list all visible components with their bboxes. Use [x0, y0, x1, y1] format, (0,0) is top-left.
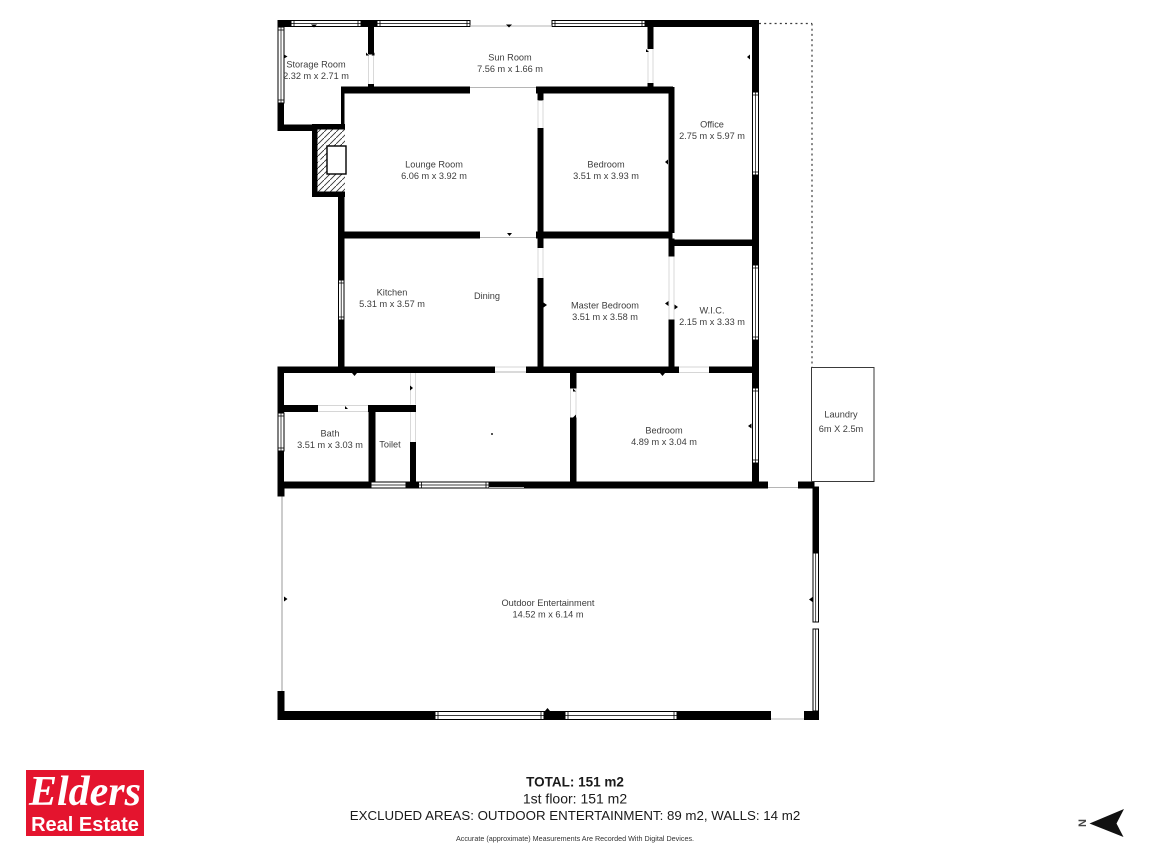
svg-text:W.I.C.: W.I.C.	[699, 306, 724, 316]
svg-text:Office: Office	[700, 120, 724, 130]
svg-text:Real Estate: Real Estate	[31, 814, 139, 836]
svg-text:N: N	[1077, 819, 1089, 827]
svg-text:Bedroom: Bedroom	[587, 160, 625, 170]
svg-text:Laundry: Laundry	[824, 410, 858, 420]
svg-text:5.31 m x 3.57 m: 5.31 m x 3.57 m	[359, 299, 425, 309]
svg-text:7.56 m x 1.66 m: 7.56 m x 1.66 m	[477, 64, 543, 74]
svg-text:Bath: Bath	[321, 429, 340, 439]
svg-text:Lounge Room: Lounge Room	[405, 160, 463, 170]
svg-text:Dining: Dining	[474, 291, 500, 301]
svg-text:3.51 m x 3.93 m: 3.51 m x 3.93 m	[573, 171, 639, 181]
svg-text:Sun Room: Sun Room	[488, 53, 532, 63]
svg-text:Toilet: Toilet	[379, 440, 401, 450]
svg-text:Bedroom: Bedroom	[645, 426, 683, 436]
svg-text:3.51 m x 3.58 m: 3.51 m x 3.58 m	[572, 312, 638, 322]
svg-text:TOTAL: 151 m2: TOTAL: 151 m2	[526, 775, 624, 790]
svg-text:3.51 m x 3.03 m: 3.51 m x 3.03 m	[297, 440, 363, 450]
svg-text:1st floor: 151 m2: 1st floor: 151 m2	[523, 791, 627, 807]
svg-text:2.32 m x 2.71 m: 2.32 m x 2.71 m	[283, 71, 349, 81]
svg-text:Accurate (approximate) Measure: Accurate (approximate) Measurements Are …	[456, 834, 694, 843]
svg-text:14.52 m x 6.14 m: 14.52 m x 6.14 m	[513, 610, 584, 620]
svg-text:4.89 m x 3.04 m: 4.89 m x 3.04 m	[631, 437, 697, 447]
svg-text:Elders: Elders	[28, 769, 141, 815]
svg-text:2.15 m x 3.33 m: 2.15 m x 3.33 m	[679, 317, 745, 327]
svg-text:2.75 m x 5.97 m: 2.75 m x 5.97 m	[679, 131, 745, 141]
svg-text:6m X 2.5m: 6m X 2.5m	[819, 424, 864, 434]
svg-text:6.06 m x 3.92 m: 6.06 m x 3.92 m	[401, 171, 467, 181]
svg-text:Kitchen: Kitchen	[377, 288, 408, 298]
svg-text:EXCLUDED AREAS: OUTDOOR ENTERT: EXCLUDED AREAS: OUTDOOR ENTERTAINMENT: 8…	[350, 808, 800, 823]
svg-text:Storage Room: Storage Room	[286, 60, 346, 70]
svg-text:Outdoor Entertainment: Outdoor Entertainment	[502, 598, 595, 608]
svg-text:Master Bedroom: Master Bedroom	[571, 301, 639, 311]
